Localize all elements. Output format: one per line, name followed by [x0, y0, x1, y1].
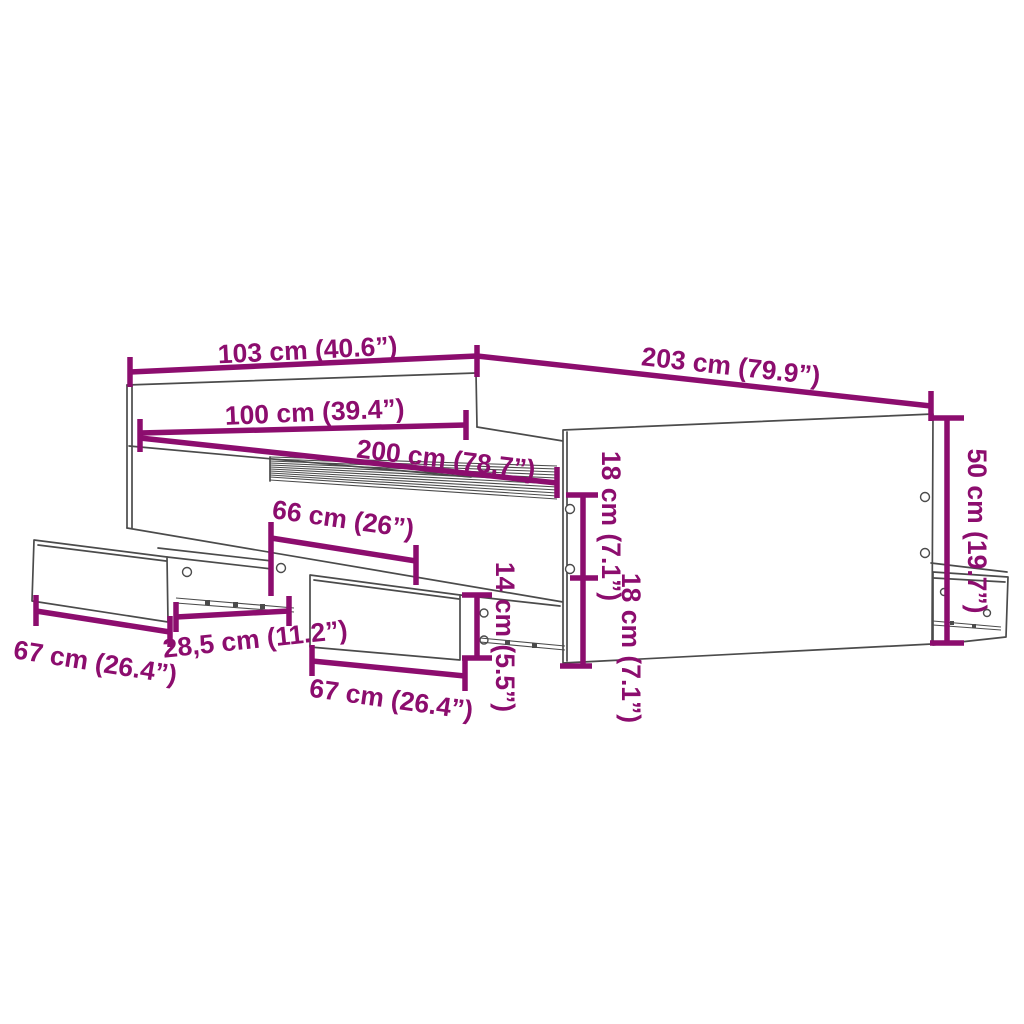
diagram-canvas: 103 cm (40.6”) 203 cm (79.9”) 100 cm (39…	[0, 0, 1024, 1024]
label-gap-width: 28,5 cm (11.2”)	[161, 614, 349, 663]
label-opening-width: 66 cm (26”)	[270, 494, 416, 544]
label-drawer-middle-width: 67 cm (26.4”)	[307, 673, 475, 726]
drawer-left	[32, 540, 294, 622]
label-side-height: 50 cm (19.7”)	[962, 449, 992, 614]
drawer-middle	[310, 575, 565, 660]
bed-frame-dimension-drawing: 103 cm (40.6”) 203 cm (79.9”) 100 cm (39…	[0, 0, 1024, 1024]
label-drawer-left-width: 67 cm (26.4”)	[12, 634, 180, 689]
dim-drawer-middle-height	[462, 595, 492, 658]
label-rail-lower-height: 18 cm (7.1”)	[616, 573, 646, 723]
label-drawer-middle-height: 14 cm (5.5”)	[490, 562, 520, 712]
